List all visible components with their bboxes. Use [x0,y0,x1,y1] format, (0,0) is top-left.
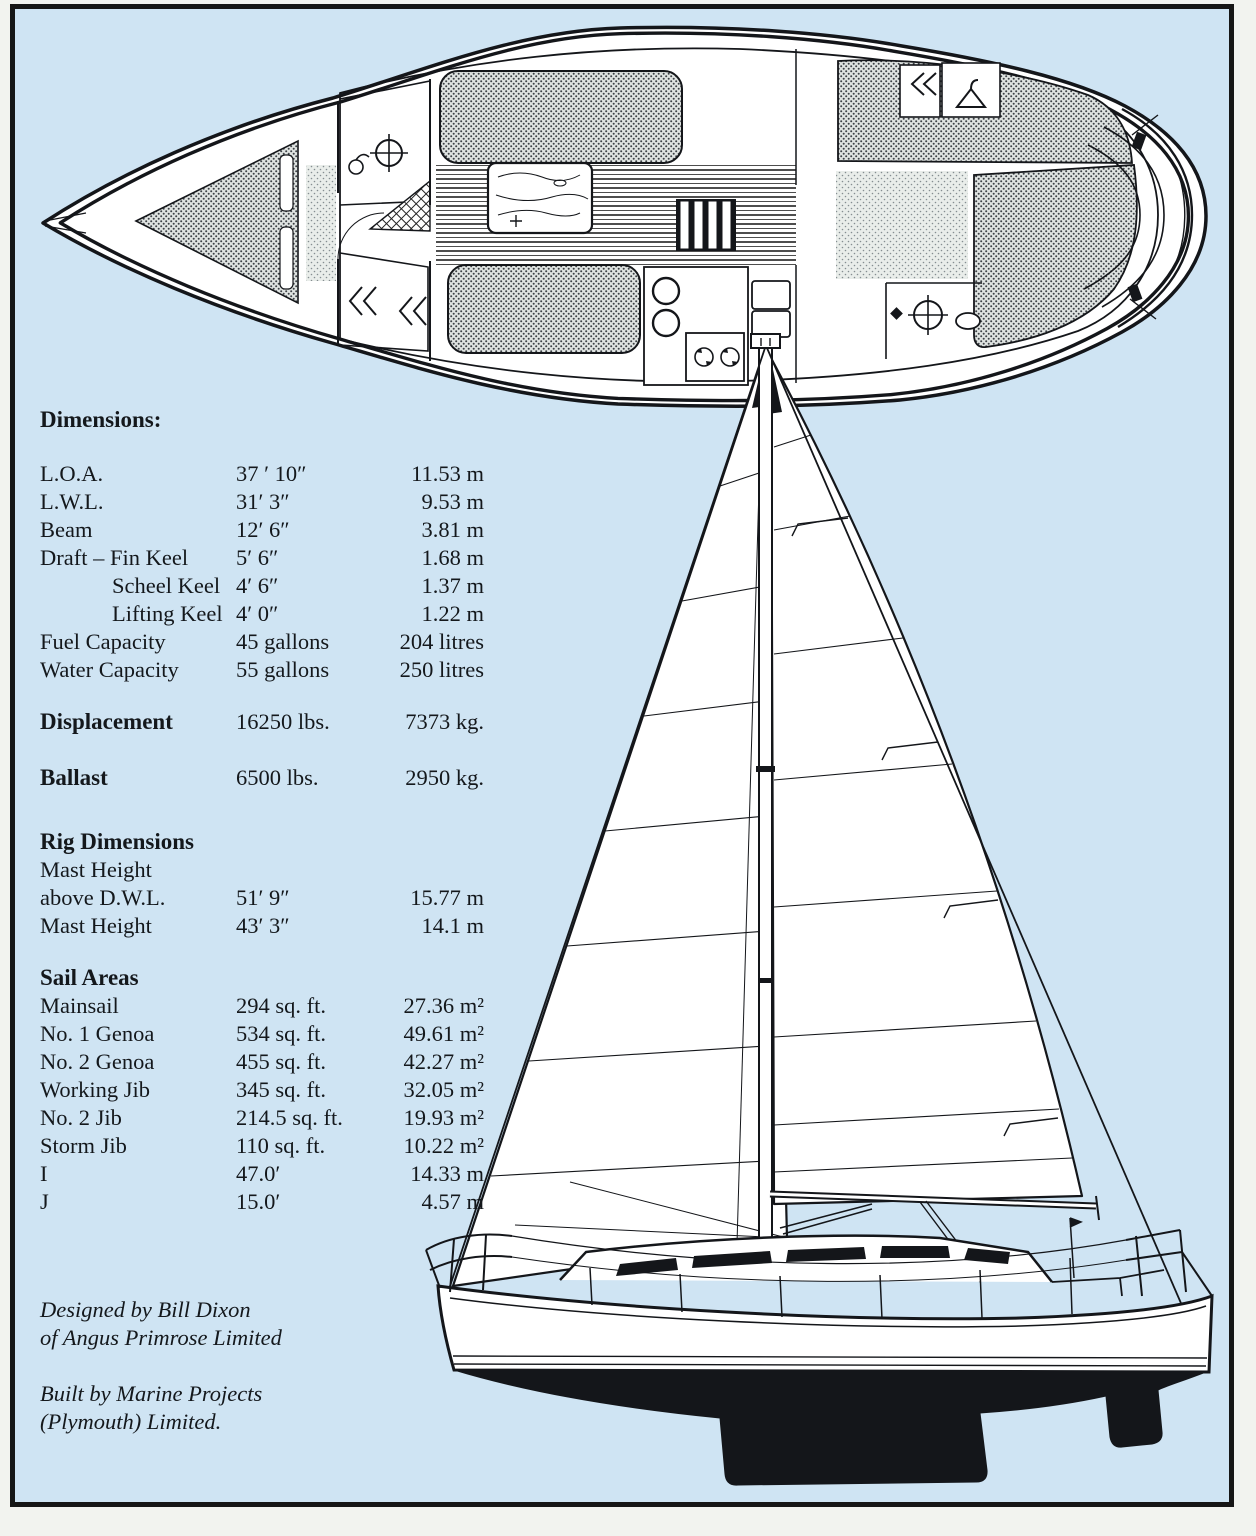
spec-metric: 204 litres [384,628,484,656]
spec-label: Water Capacity [40,656,236,684]
spec-metric: 49.61 m² [384,1020,484,1048]
spec-metric [384,856,484,884]
spec-imperial: 15.0′ [236,1188,384,1216]
cabin-window [880,1246,950,1258]
spec-label: above D.W.L. [40,884,236,912]
spec-metric: 1.68 m [384,544,484,572]
designer-credit-line1: Designed by Bill Dixon [40,1296,400,1324]
companionway-steps [676,199,736,251]
underwater-body [454,1370,1206,1485]
builder-credit-line2: (Plymouth) Limited. [40,1408,400,1436]
spec-metric: 9.53 m [384,488,484,516]
cockpit-coaming [1052,1270,1164,1296]
jib-sail [453,350,787,1286]
spec-imperial: 294 sq. ft. [236,992,384,1020]
spec-metric: 27.36 m² [384,992,484,1020]
dimensions-heading: Dimensions: [40,406,488,434]
spec-imperial: 12′ 6″ [236,516,384,544]
spec-row: L.O.A. 37 ′ 10″ 11.53 m [40,460,488,488]
spec-row: Mainsail 294 sq. ft. 27.36 m² [40,992,488,1020]
spec-imperial: 6500 lbs. [236,764,384,792]
spec-row: Beam 12′ 6″ 3.81 m [40,516,488,544]
spec-label: J [40,1188,236,1216]
spec-metric: 1.37 m [384,572,484,600]
outhaul-fitting [1096,1196,1099,1220]
builder-credit: Built by Marine Projects (Plymouth) Limi… [40,1380,400,1436]
spec-imperial: 37 ′ 10″ [236,460,384,488]
spec-row: Lifting Keel 4′ 0″ 1.22 m [40,600,488,628]
spreader-root [756,766,775,772]
spec-imperial: 4′ 0″ [236,600,384,628]
sail-areas-section: Sail Areas Mainsail 294 sq. ft. 27.36 m²… [40,964,488,1216]
companionway-hatch [752,281,790,337]
spec-metric: 42.27 m² [384,1048,484,1076]
topsides [438,1286,1212,1372]
spec-label: No. 1 Genoa [40,1020,236,1048]
spec-metric: 14.33 m [384,1160,484,1188]
sail-areas-heading: Sail Areas [40,964,488,992]
spec-metric: 14.1 m [384,912,484,940]
spec-row: Mast Height 43′ 3″ 14.1 m [40,912,488,940]
spec-label: Fuel Capacity [40,628,236,656]
spec-metric: 2950 kg. [384,764,484,792]
spec-metric: 1.22 m [384,600,484,628]
spec-label: Lifting Keel [40,600,236,628]
saloon-table [488,163,592,233]
spec-row: No. 2 Jib 214.5 sq. ft. 19.93 m² [40,1104,488,1132]
spec-label: No. 2 Jib [40,1104,236,1132]
mainsail [768,358,1082,1204]
spec-imperial: 45 gallons [236,628,384,656]
spec-row: Scheel Keel 4′ 6″ 1.37 m [40,572,488,600]
displacement-section: Displacement 16250 lbs. 7373 kg. [40,708,488,736]
rig-section: Rig Dimensions Mast Height above D.W.L. … [40,828,488,940]
spec-metric: 19.93 m² [384,1104,484,1132]
spec-label: L.O.A. [40,460,236,488]
spec-label: Storm Jib [40,1132,236,1160]
spec-row: Displacement 16250 lbs. 7373 kg. [40,708,488,736]
spec-imperial: 55 gallons [236,656,384,684]
spec-imperial: 51′ 9″ [236,884,384,912]
stern-pushpit [1126,1230,1212,1296]
spec-metric: 3.81 m [384,516,484,544]
spec-metric: 32.05 m² [384,1076,484,1104]
ballast-section: Ballast 6500 lbs. 2950 kg. [40,764,488,792]
spec-row: No. 1 Genoa 534 sq. ft. 49.61 m² [40,1020,488,1048]
spec-imperial: 214.5 sq. ft. [236,1104,384,1132]
spec-imperial: 110 sq. ft. [236,1132,384,1160]
spec-imperial: 534 sq. ft. [236,1020,384,1048]
spec-imperial [236,856,384,884]
spec-label: Displacement [40,708,236,736]
spec-metric: 15.77 m [384,884,484,912]
spec-imperial: 31′ 3″ [236,488,384,516]
spec-label: Mast Height [40,856,236,884]
spec-label: Scheel Keel [40,572,236,600]
washbasin-icon [956,313,980,329]
spec-row: L.W.L. 31′ 3″ 9.53 m [40,488,488,516]
spec-label: No. 2 Genoa [40,1048,236,1076]
aft-cabin-sole [836,171,968,279]
spec-imperial: 43′ 3″ [236,912,384,940]
spec-label: Mainsail [40,992,236,1020]
spec-row: Working Jib 345 sq. ft. 32.05 m² [40,1076,488,1104]
spec-label: Mast Height [40,912,236,940]
spec-label: I [40,1160,236,1188]
designer-credit: Designed by Bill Dixon of Angus Primrose… [40,1296,400,1352]
spec-metric: 10.22 m² [384,1132,484,1160]
spec-metric: 7373 kg. [384,708,484,736]
spec-imperial: 455 sq. ft. [236,1048,384,1076]
sail-plan-drawing [420,330,1250,1510]
spec-row: I 47.0′ 14.33 m [40,1160,488,1188]
mast-joint [758,978,773,983]
spec-metric: 11.53 m [384,460,484,488]
builder-credit-line1: Built by Marine Projects [40,1380,400,1408]
spec-row: No. 2 Genoa 455 sq. ft. 42.27 m² [40,1048,488,1076]
dimensions-section: Dimensions: L.O.A. 37 ′ 10″ 11.53 m L.W.… [40,406,488,684]
spec-row: above D.W.L. 51′ 9″ 15.77 m [40,884,488,912]
spec-imperial: 5′ 6″ [236,544,384,572]
spec-row: Ballast 6500 lbs. 2950 kg. [40,764,488,792]
spec-metric: 4.57 m [384,1188,484,1216]
spec-row: Draft – Fin Keel 5′ 6″ 1.68 m [40,544,488,572]
spec-row: Mast Height [40,856,488,884]
masthead-fitting [751,334,780,348]
settee-port [440,71,682,163]
spec-row: Storm Jib 110 sq. ft. 10.22 m² [40,1132,488,1160]
spec-label: Working Jib [40,1076,236,1104]
brochure-page: Dimensions: L.O.A. 37 ′ 10″ 11.53 m L.W.… [0,0,1256,1536]
rig-heading: Rig Dimensions [40,828,488,856]
spec-label: L.W.L. [40,488,236,516]
spec-row: Water Capacity 55 gallons 250 litres [40,656,488,684]
spec-row: J 15.0′ 4.57 m [40,1188,488,1216]
spec-label: Beam [40,516,236,544]
spec-label: Ballast [40,764,236,792]
spec-imperial: 16250 lbs. [236,708,384,736]
spec-row: Fuel Capacity 45 gallons 204 litres [40,628,488,656]
designer-credit-line2: of Angus Primrose Limited [40,1324,400,1352]
spec-imperial: 345 sq. ft. [236,1076,384,1104]
boom-vang [780,1204,872,1234]
spec-metric: 250 litres [384,656,484,684]
spec-label: Draft – Fin Keel [40,544,236,572]
spec-imperial: 47.0′ [236,1160,384,1188]
spec-imperial: 4′ 6″ [236,572,384,600]
